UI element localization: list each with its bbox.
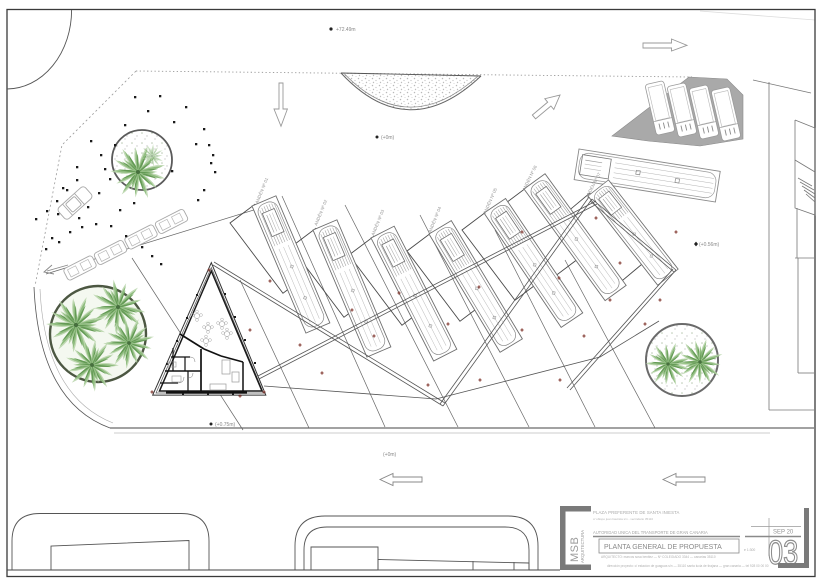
- svg-text:PLANTA GENERAL DE PROPUESTA: PLANTA GENERAL DE PROPUESTA: [604, 544, 722, 551]
- svg-text:ARQUITECTURA: ARQUITECTURA: [580, 530, 585, 563]
- svg-text:(+0.75m): (+0.75m): [215, 422, 235, 428]
- svg-text:+72.49m: +72.49m: [336, 27, 356, 33]
- svg-text:e 1:300: e 1:300: [744, 548, 755, 552]
- svg-text:(+0.56m): (+0.56m): [699, 242, 719, 248]
- svg-text:dirección proyecto: c/ estacio: dirección proyecto: c/ estacion de guagu…: [607, 564, 769, 568]
- svg-text:c/ obispo juan bautista s/n -: c/ obispo juan bautista s/n - vecindario…: [593, 517, 653, 521]
- svg-text:PLAZA PREFERENTE DE SANTA INIE: PLAZA PREFERENTE DE SANTA INIESTA: [593, 510, 680, 515]
- svg-text:ARQUITECTO: marcos sosa benite: ARQUITECTO: marcos sosa benitez — Nº COL…: [601, 555, 716, 559]
- svg-text:(+0m): (+0m): [383, 452, 397, 458]
- svg-text:(+0m): (+0m): [381, 135, 395, 141]
- svg-text:AUTORIDAD UNICA DEL TRANSPORTE: AUTORIDAD UNICA DEL TRANSPORTE DE GRAN C…: [593, 530, 708, 535]
